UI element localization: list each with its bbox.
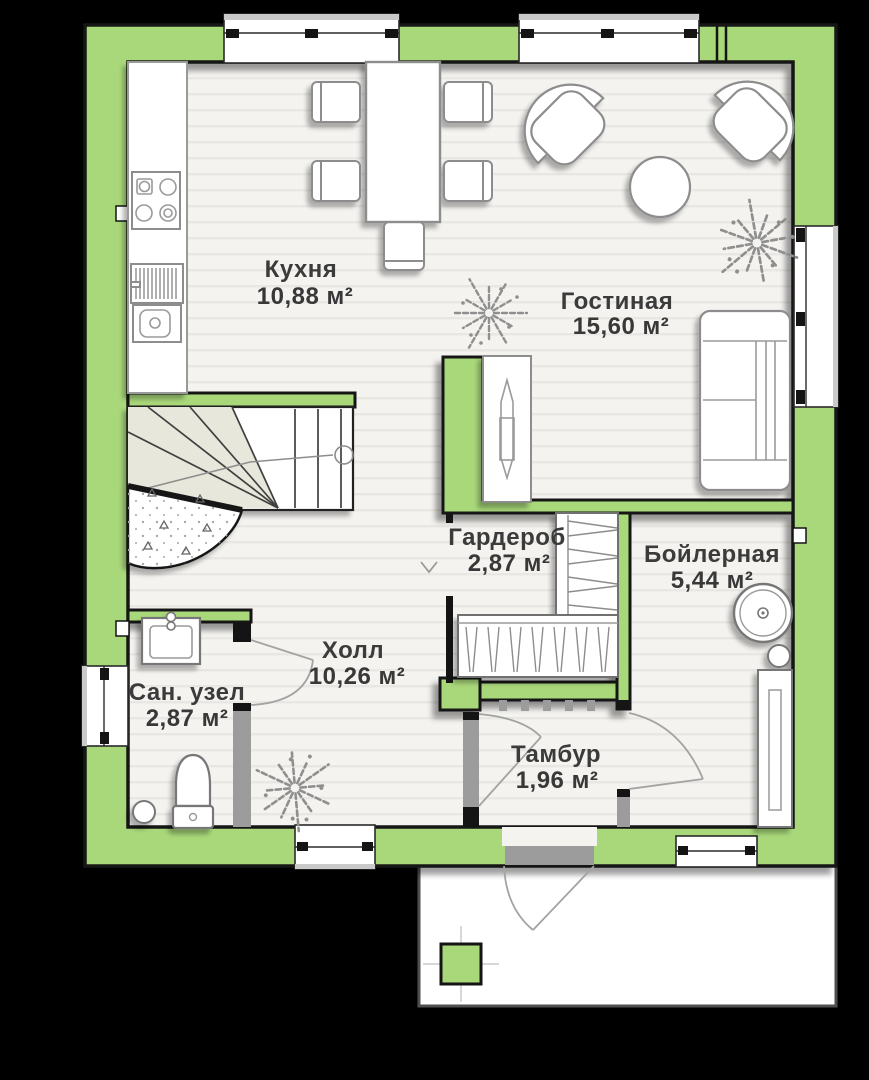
chair-icon — [312, 161, 360, 201]
room-label-vestibule: Тамбур — [511, 741, 601, 768]
room-area-wardrobe: 2,87 м² — [468, 550, 551, 577]
window-icon — [82, 666, 128, 746]
room-label-hall: Холл — [322, 637, 384, 664]
window-icon — [224, 14, 399, 63]
stove-icon — [132, 172, 180, 229]
room-area-vestibule: 1,96 м² — [516, 767, 599, 794]
toilet-icon — [173, 755, 213, 828]
sofa-icon — [700, 311, 790, 490]
vestibule-top-wall — [480, 682, 617, 700]
room-area-kitchen: 10,88 м² — [257, 283, 353, 310]
room-area-boiler: 5,44 м² — [671, 567, 754, 594]
coffee-table-icon — [630, 157, 690, 217]
room-label-bathroom: Сан. узел — [129, 679, 246, 706]
room-area-bathroom: 2,87 м² — [146, 705, 229, 732]
dining-table-icon — [366, 62, 440, 222]
drying-rack-icon — [131, 264, 183, 303]
window-icon — [676, 836, 757, 867]
chair-icon — [312, 82, 360, 122]
window-icon — [519, 14, 699, 63]
chair-icon — [444, 82, 492, 122]
chair-icon — [444, 161, 492, 201]
floor-plan: Кухня 10,88 м² Гостиная 15,60 м² Гардеро… — [0, 0, 869, 1080]
kitchen-counter — [128, 62, 187, 393]
window-icon — [295, 825, 375, 869]
window-icon — [794, 226, 838, 407]
room-area-living: 15,60 м² — [573, 313, 669, 340]
porch — [419, 866, 836, 1006]
kitchen-sink-icon — [133, 305, 181, 342]
room-label-kitchen: Кухня — [265, 256, 338, 283]
vanity-sink-icon — [142, 613, 200, 665]
clothes-rail-icon — [458, 615, 618, 677]
room-label-boiler: Бойлерная — [644, 541, 780, 568]
room-label-living: Гостиная — [561, 288, 673, 315]
room-label-wardrobe: Гардероб — [448, 524, 565, 551]
floor-plan-svg: Кухня 10,88 м² Гостиная 15,60 м² Гардеро… — [0, 0, 869, 1080]
room-area-hall: 10,26 м² — [309, 663, 405, 690]
water-heater-icon — [758, 670, 792, 827]
tv-unit-icon — [483, 356, 531, 502]
stair-wall — [128, 393, 355, 407]
chair-icon — [384, 222, 424, 270]
floor-drain-icon — [133, 801, 155, 823]
